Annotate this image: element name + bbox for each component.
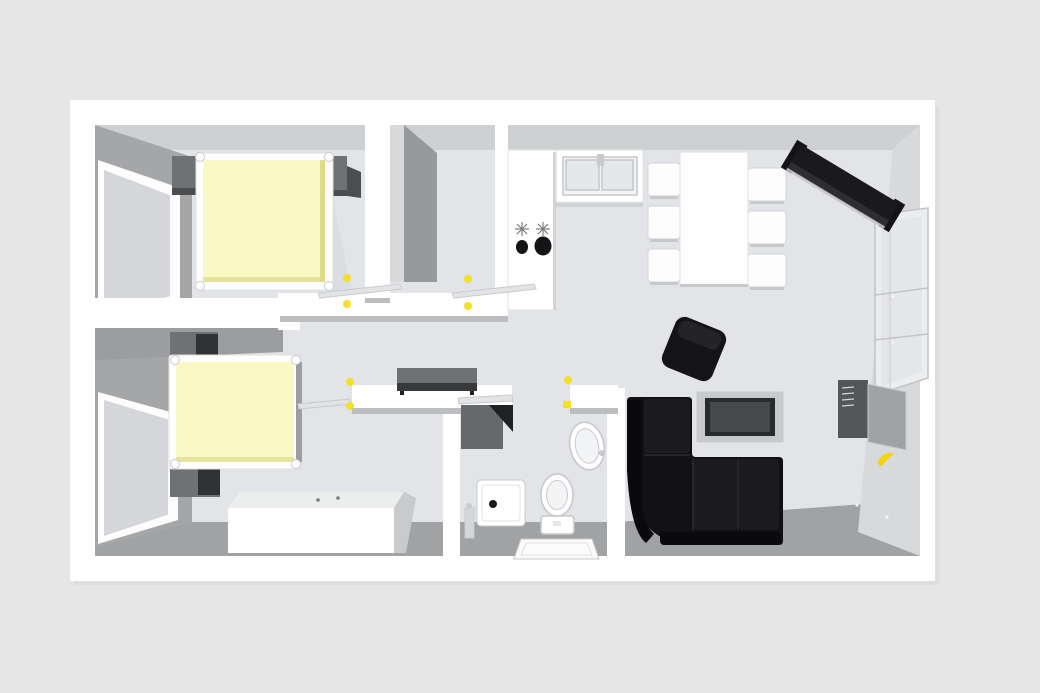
stove-burner-large bbox=[535, 237, 552, 256]
dining-chair[interactable] bbox=[648, 163, 680, 196]
wall-hallway-top bbox=[280, 293, 508, 316]
sink-basin-right bbox=[602, 160, 633, 190]
glass-shelf-unit[interactable] bbox=[875, 208, 928, 395]
chair-shadow bbox=[650, 239, 678, 242]
bedpost bbox=[325, 282, 334, 291]
door-knob[interactable] bbox=[343, 300, 351, 308]
chair-shadow bbox=[750, 287, 784, 290]
dining-chair[interactable] bbox=[748, 211, 786, 244]
chest-top bbox=[228, 492, 404, 508]
floor-plan-image bbox=[0, 0, 1040, 693]
sideboard-front bbox=[397, 383, 477, 391]
shelf-dot bbox=[891, 294, 894, 297]
wall-kitchen-left bbox=[495, 100, 508, 310]
chair-shadow bbox=[750, 201, 784, 204]
footboard-shadow bbox=[296, 362, 302, 462]
sofa-cushion bbox=[694, 459, 737, 530]
kitchen-sink[interactable] bbox=[556, 150, 643, 207]
duvet-edge bbox=[203, 277, 325, 282]
dining-chair[interactable] bbox=[748, 168, 786, 201]
toilet-seat bbox=[547, 481, 568, 510]
chest-front bbox=[228, 508, 394, 553]
dining-table[interactable] bbox=[680, 152, 748, 287]
glass-unit-pane bbox=[881, 216, 922, 387]
mat-outer bbox=[514, 539, 599, 559]
bedroom1-window bbox=[98, 160, 180, 320]
door-knob[interactable] bbox=[343, 274, 351, 282]
chest-handle bbox=[336, 496, 340, 500]
dining-chairs-right[interactable] bbox=[748, 168, 786, 290]
wall-lip bbox=[280, 316, 508, 322]
bed-duvet bbox=[176, 362, 294, 462]
chair-shadow bbox=[650, 196, 678, 199]
closet-wall-top-face bbox=[390, 125, 404, 282]
bedpost bbox=[171, 460, 180, 469]
door-knob[interactable] bbox=[564, 376, 572, 384]
wall-lip bbox=[570, 408, 618, 414]
duvet-edge bbox=[320, 160, 325, 282]
wall-dot bbox=[885, 515, 888, 518]
wall-between-bedrooms bbox=[70, 298, 283, 328]
bath-mat[interactable] bbox=[514, 539, 599, 559]
bedpost bbox=[196, 153, 205, 162]
dining-chairs-left[interactable] bbox=[648, 163, 680, 285]
tv-screen bbox=[710, 402, 770, 432]
shelf-dot bbox=[891, 340, 894, 343]
toilet-button bbox=[553, 521, 561, 526]
chest-handle bbox=[316, 498, 320, 502]
shower-tray bbox=[477, 480, 525, 526]
sideboard-top bbox=[397, 368, 477, 383]
table-top bbox=[680, 152, 748, 286]
double-bed-bottom[interactable] bbox=[169, 355, 302, 469]
stove-burner-small bbox=[516, 240, 528, 254]
chair-shadow bbox=[750, 244, 784, 247]
sink-faucet bbox=[597, 154, 604, 166]
sofa-backrest-bottom bbox=[660, 532, 781, 545]
sideboard-leg bbox=[400, 391, 404, 395]
light-switch[interactable] bbox=[563, 401, 571, 408]
duvet-edge bbox=[176, 457, 294, 462]
cabinet-door[interactable] bbox=[868, 384, 906, 450]
wall-dot bbox=[855, 503, 858, 506]
window-reveal-highlight bbox=[170, 189, 180, 300]
bedpost bbox=[325, 153, 334, 162]
bedroom2-window bbox=[98, 392, 178, 544]
door-knob[interactable] bbox=[346, 378, 354, 386]
bedpost bbox=[171, 356, 180, 365]
door-knob[interactable] bbox=[464, 302, 472, 310]
sink-basin-left bbox=[566, 160, 599, 190]
door-knob[interactable] bbox=[346, 402, 354, 410]
sofa-cushion bbox=[739, 459, 779, 530]
shower-drain bbox=[489, 500, 497, 508]
dining-chair[interactable] bbox=[748, 254, 786, 287]
sideboard-leg bbox=[470, 391, 474, 395]
wall-bedroom1-right bbox=[365, 100, 390, 300]
toilet[interactable] bbox=[541, 474, 574, 534]
hallway bbox=[397, 368, 477, 395]
table-shadow bbox=[680, 284, 748, 287]
floor-plan-svg bbox=[0, 0, 1040, 693]
dining-chair[interactable] bbox=[648, 249, 680, 282]
door-knob[interactable] bbox=[464, 275, 472, 283]
bed-duvet bbox=[203, 160, 325, 282]
dining-chair[interactable] bbox=[648, 206, 680, 239]
bedpost bbox=[292, 356, 301, 365]
window-glass bbox=[104, 400, 170, 536]
dining-set bbox=[648, 152, 786, 290]
bedpost bbox=[196, 282, 205, 291]
hallway-sideboard[interactable] bbox=[397, 368, 477, 395]
dresser-chest[interactable] bbox=[228, 492, 416, 553]
bedpost bbox=[292, 460, 301, 469]
wall-lip bbox=[365, 298, 390, 303]
shower-head bbox=[466, 503, 472, 509]
sink-shadow bbox=[556, 203, 643, 207]
sofa-cushion bbox=[644, 399, 690, 453]
double-bed-top[interactable] bbox=[196, 153, 334, 291]
chair-shadow bbox=[650, 282, 678, 285]
tv-on-stand[interactable] bbox=[697, 392, 783, 442]
bedroom1 bbox=[172, 153, 361, 293]
shower-column bbox=[465, 508, 474, 538]
cabinet-interior bbox=[838, 380, 868, 438]
